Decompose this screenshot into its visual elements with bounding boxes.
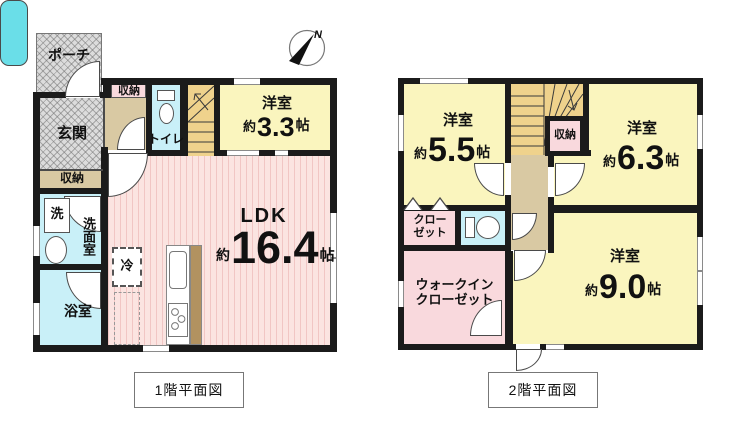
wall <box>33 188 108 194</box>
western-3-3-name: 洋室 <box>247 95 307 112</box>
kitchen-sink-icon <box>169 251 187 289</box>
floor2-caption-box: 2階平面図 <box>488 372 598 408</box>
window-marker <box>234 78 260 85</box>
closet-label: クロー ゼット <box>406 214 454 239</box>
wall <box>101 264 108 345</box>
unit-label: 帖 <box>665 150 679 174</box>
bathroom-label: 浴室 <box>60 303 96 319</box>
wall <box>33 264 108 270</box>
approx-label: 約 <box>216 245 230 269</box>
floor2-caption: 2階平面図 <box>509 380 578 400</box>
wall <box>505 251 513 344</box>
size-number: 6.3 <box>617 143 664 174</box>
kitchen-counter-edge <box>190 245 202 345</box>
floor1-caption: 1階平面図 <box>155 380 224 400</box>
compass-north-label: N <box>312 29 324 42</box>
window-marker <box>398 281 404 307</box>
wall <box>103 98 105 147</box>
western-5-5-name: 洋室 <box>428 112 488 129</box>
western-9-0-size: 約 9.0 帖 <box>585 272 661 303</box>
wall <box>548 213 554 253</box>
approx-label: 約 <box>414 143 427 166</box>
walkin-closet-line2: クローゼット <box>406 293 503 308</box>
porch-label: ポーチ <box>40 47 98 63</box>
window-marker <box>33 303 40 335</box>
western-5-5-size: 約 5.5 帖 <box>414 135 490 166</box>
unit-label: 帖 <box>476 142 490 166</box>
unit-label: 帖 <box>320 244 335 269</box>
size-number: 3.3 <box>257 115 295 139</box>
window-marker <box>398 115 404 151</box>
hall-storage-label: 収納 <box>112 85 146 98</box>
fridge-label: 冷 <box>113 259 141 274</box>
toilet-bowl-icon <box>159 103 174 124</box>
closet-label-line1: クロー <box>406 214 454 227</box>
wall <box>398 245 511 251</box>
pantry-dashed-area <box>114 292 140 345</box>
size-number: 5.5 <box>428 135 475 166</box>
wall <box>101 194 108 264</box>
entrance-storage-label: 収納 <box>52 172 92 186</box>
wall <box>548 197 554 205</box>
window-divider <box>697 270 703 272</box>
window-marker <box>33 226 40 256</box>
wall <box>583 150 591 156</box>
unit-label: 帖 <box>296 115 310 139</box>
wall <box>455 211 461 245</box>
washbasin-icon <box>45 236 67 264</box>
wall <box>103 84 111 98</box>
wall <box>505 84 511 163</box>
stove-burners-icon <box>168 303 188 337</box>
washer-label: 洗 <box>44 207 70 222</box>
walkin-closet-line1: ウォークイン <box>406 278 503 293</box>
approx-label: 約 <box>585 280 598 303</box>
window-marker <box>275 150 288 156</box>
stairs-1f-steps <box>188 84 214 156</box>
toilet-tank-icon <box>465 217 475 238</box>
toilet-label: トイレ <box>148 133 184 147</box>
window-marker <box>227 150 259 156</box>
floor-plan-image: ポーチ 玄関 収納 収納 トイレ 洗 洗面室 冷 浴室 洋室 約 3.3 帖 L… <box>0 0 740 430</box>
closet-label-line2: ゼット <box>406 227 454 240</box>
toilet-tank-icon <box>157 90 175 101</box>
western-6-3-size: 約 6.3 帖 <box>603 143 679 174</box>
window-marker <box>546 344 564 350</box>
wall <box>33 345 337 352</box>
size-number: 16.4 <box>231 228 319 269</box>
western-6-3-name: 洋室 <box>612 120 672 137</box>
walkin-closet-label: ウォークイン クローゼット <box>406 278 503 308</box>
folding-door-icon <box>403 196 455 211</box>
wall <box>548 205 703 213</box>
approx-label: 約 <box>243 116 256 139</box>
door-arc-balcony <box>516 349 542 371</box>
western-3-3-size: 約 3.3 帖 <box>243 115 310 139</box>
floor1-caption-box: 1階平面図 <box>134 372 244 408</box>
unit-label: 帖 <box>647 279 661 303</box>
approx-label: 約 <box>603 151 616 174</box>
floor1-plan: ポーチ 玄関 収納 収納 トイレ 洗 洗面室 冷 浴室 洋室 約 3.3 帖 L… <box>0 0 740 66</box>
window-marker <box>697 115 703 149</box>
window-marker <box>143 345 169 352</box>
window-marker <box>420 78 468 84</box>
wall <box>548 155 554 167</box>
entrance-label: 玄関 <box>52 125 92 142</box>
wall <box>146 150 188 156</box>
ldk-size: 約 16.4 帖 <box>216 228 335 269</box>
washroom-label: 洗面室 <box>80 206 95 266</box>
western-9-0-name: 洋室 <box>595 248 655 265</box>
storage-2f-label: 収納 <box>548 129 582 142</box>
toilet-bowl-icon <box>476 216 500 239</box>
wall <box>214 78 220 156</box>
size-number: 9.0 <box>599 272 646 303</box>
bathtub-icon <box>0 0 28 66</box>
